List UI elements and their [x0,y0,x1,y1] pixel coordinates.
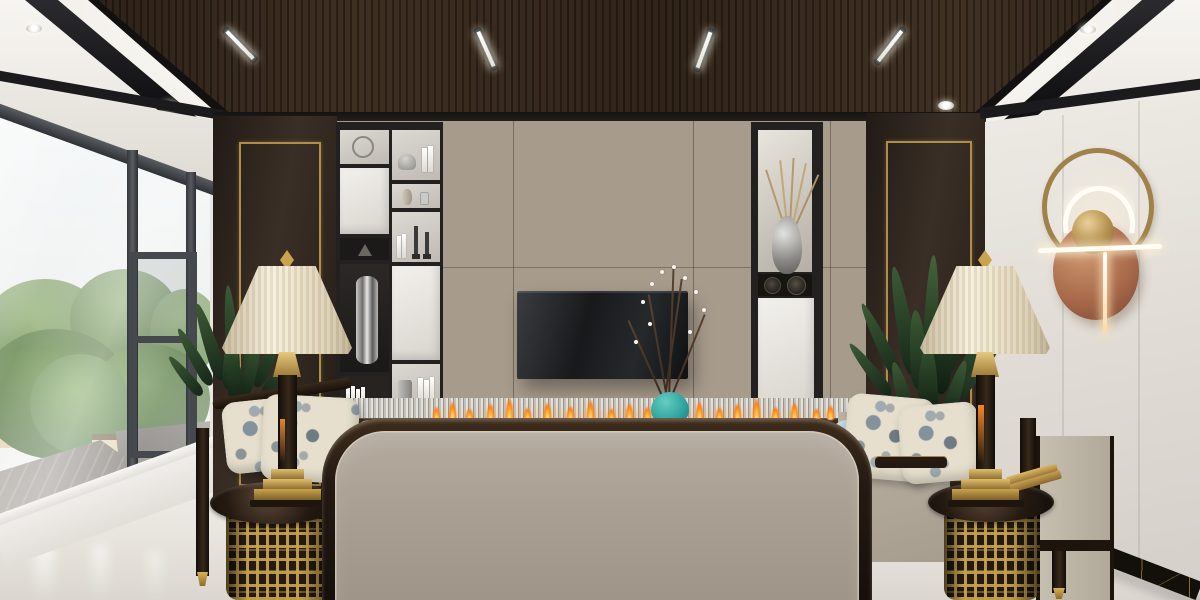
sofa [0,0,1200,600]
sofa-back-trim [322,418,872,600]
sofa-back-fabric [335,431,859,600]
living-room-render [0,0,1200,600]
